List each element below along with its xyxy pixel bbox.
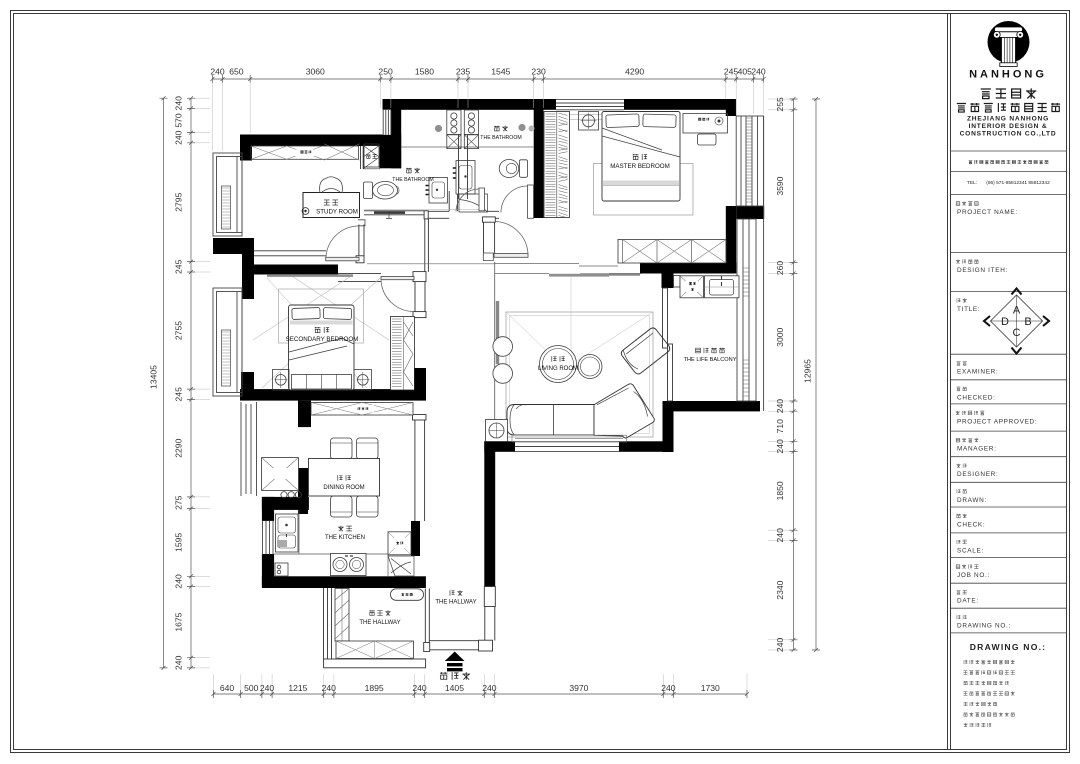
- svg-text:3970: 3970: [569, 683, 588, 693]
- svg-text:240: 240: [260, 683, 275, 693]
- svg-text:MASTER BEDROOM: MASTER BEDROOM: [610, 163, 669, 170]
- svg-text:1545: 1545: [491, 67, 510, 77]
- svg-text:2795: 2795: [174, 192, 184, 211]
- svg-text:240: 240: [482, 683, 497, 693]
- svg-text:PROJECT APPROVED:: PROJECT APPROVED:: [957, 418, 1037, 425]
- svg-text:D: D: [1001, 316, 1009, 328]
- svg-text:1895: 1895: [365, 683, 384, 693]
- svg-text:JOB NO.:: JOB NO.:: [957, 572, 990, 579]
- svg-text:230: 230: [531, 67, 546, 77]
- svg-text:240: 240: [661, 683, 676, 693]
- svg-text:570: 570: [174, 113, 184, 128]
- svg-text:240: 240: [775, 638, 785, 653]
- svg-text:THE BATHROOM: THE BATHROOM: [480, 135, 521, 141]
- svg-text:ZHEJIANG NANHONG: ZHEJIANG NANHONG: [967, 116, 1049, 123]
- svg-text:240: 240: [210, 67, 225, 77]
- svg-text:3060: 3060: [306, 67, 325, 77]
- svg-text:DINING ROOM: DINING ROOM: [323, 485, 364, 491]
- svg-text:C: C: [1013, 327, 1021, 339]
- svg-text:2755: 2755: [174, 321, 184, 340]
- svg-text:245: 245: [174, 387, 184, 402]
- svg-text:240: 240: [775, 439, 785, 454]
- svg-text:1850: 1850: [775, 481, 785, 500]
- svg-text:1730: 1730: [701, 683, 720, 693]
- svg-text:DRAWN:: DRAWN:: [957, 497, 987, 504]
- svg-text:INTERIOR DESIGN &: INTERIOR DESIGN &: [969, 123, 1048, 130]
- svg-text:240: 240: [322, 683, 337, 693]
- svg-text:3000: 3000: [775, 327, 785, 346]
- svg-text:DRAWING NO.:: DRAWING NO.:: [970, 642, 1046, 652]
- svg-text:1595: 1595: [174, 533, 184, 552]
- svg-text:CHECKED:: CHECKED:: [957, 394, 996, 401]
- svg-text:255: 255: [775, 97, 785, 112]
- svg-text:1215: 1215: [288, 683, 307, 693]
- svg-text:SECONDARY BEDROOM: SECONDARY BEDROOM: [286, 336, 359, 343]
- svg-text:2290: 2290: [174, 438, 184, 457]
- svg-text:12965: 12965: [803, 359, 813, 383]
- svg-text:CHECK:: CHECK:: [957, 522, 985, 529]
- svg-text:710: 710: [775, 419, 785, 434]
- svg-text:650: 650: [229, 67, 244, 77]
- svg-text:240: 240: [775, 399, 785, 414]
- svg-text:PROJECT NAME:: PROJECT NAME:: [957, 209, 1018, 216]
- svg-text:THE BATHROOM: THE BATHROOM: [392, 177, 433, 183]
- svg-text:260: 260: [775, 261, 785, 276]
- svg-text:THE HALLWAY: THE HALLWAY: [435, 600, 476, 606]
- svg-text:LIVING ROOM: LIVING ROOM: [538, 366, 578, 372]
- svg-text:240: 240: [174, 655, 184, 670]
- svg-text:240: 240: [751, 67, 766, 77]
- svg-text:3590: 3590: [775, 176, 785, 195]
- svg-text:405: 405: [738, 67, 753, 77]
- svg-text:245: 245: [724, 67, 739, 77]
- svg-text:DESIGN ITEH:: DESIGN ITEH:: [957, 267, 1008, 274]
- svg-text:B: B: [1024, 316, 1031, 328]
- svg-text:THE HALLWAY: THE HALLWAY: [359, 620, 400, 626]
- svg-text:DRAWING NO.:: DRAWING NO.:: [957, 623, 1011, 630]
- svg-text:250: 250: [378, 67, 393, 77]
- svg-text:245: 245: [174, 259, 184, 274]
- svg-text:240: 240: [174, 96, 184, 111]
- svg-text:240: 240: [412, 683, 427, 693]
- svg-text:EXAMINER:: EXAMINER:: [957, 369, 998, 376]
- svg-text:4290: 4290: [625, 67, 644, 77]
- svg-text:275: 275: [174, 495, 184, 510]
- svg-text:640: 640: [220, 683, 235, 693]
- svg-text:MANAGER:: MANAGER:: [957, 446, 997, 453]
- svg-text:1675: 1675: [174, 612, 184, 631]
- svg-text:240: 240: [775, 528, 785, 543]
- svg-text:DATE:: DATE:: [957, 598, 979, 605]
- svg-text:13405: 13405: [149, 365, 159, 389]
- svg-text:THE KITCHEN: THE KITCHEN: [325, 535, 365, 541]
- svg-text:SCALE:: SCALE:: [957, 547, 984, 554]
- svg-text:240: 240: [174, 130, 184, 145]
- svg-text:500: 500: [244, 683, 259, 693]
- svg-text:2340: 2340: [775, 580, 785, 599]
- svg-text:(86) 571-85812341 85812342: (86) 571-85812341 85812342: [986, 180, 1050, 186]
- svg-text:A: A: [1013, 305, 1021, 317]
- svg-text:DESIGNER:: DESIGNER:: [957, 471, 998, 478]
- svg-text:STUDY ROOM: STUDY ROOM: [316, 209, 358, 216]
- svg-text:THE LIFE BALCONY: THE LIFE BALCONY: [684, 357, 737, 363]
- svg-text:240: 240: [174, 574, 184, 589]
- svg-text:1580: 1580: [415, 67, 434, 77]
- svg-text:CONSTRUCTION CO.,LTD: CONSTRUCTION CO.,LTD: [960, 131, 1057, 138]
- svg-text:NANHONG: NANHONG: [969, 69, 1047, 81]
- svg-text:235: 235: [456, 67, 471, 77]
- svg-text:1405: 1405: [445, 683, 464, 693]
- svg-text:TITLE:: TITLE:: [957, 306, 980, 313]
- svg-text:TEL:: TEL:: [967, 180, 977, 186]
